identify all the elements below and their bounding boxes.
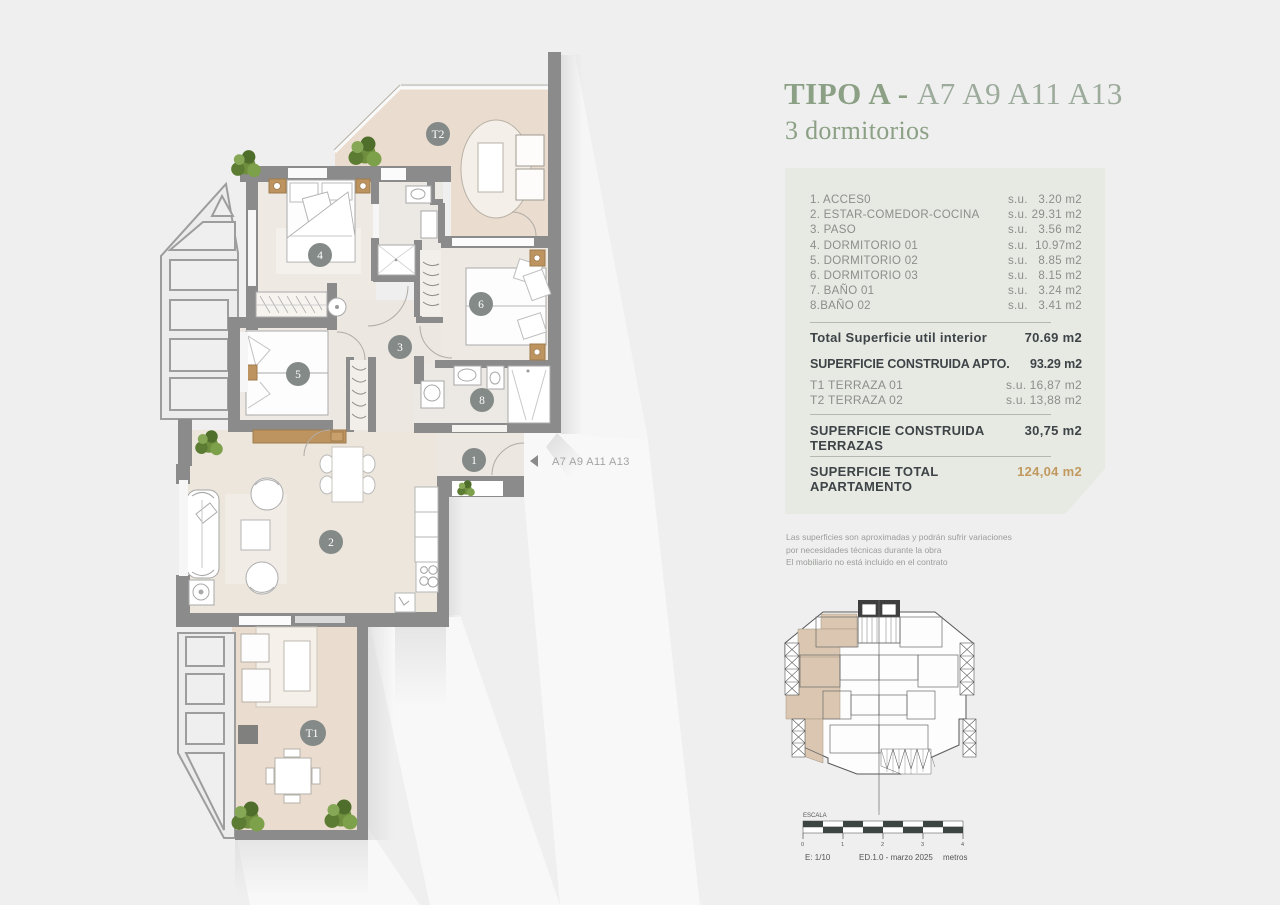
svg-text:2: 2 (881, 842, 884, 848)
svg-text:ED.1.0 - marzo 2025: ED.1.0 - marzo 2025 (859, 853, 933, 862)
svg-text:E: 1/10: E: 1/10 (805, 853, 831, 862)
svg-text:6: 6 (478, 299, 484, 311)
svg-text:A7 A9 A11 A13: A7 A9 A11 A13 (552, 456, 630, 468)
svg-text:4: 4 (317, 250, 323, 262)
svg-text:1: 1 (471, 455, 477, 467)
svg-text:0: 0 (801, 842, 804, 848)
svg-text:ESCALA: ESCALA (803, 813, 827, 819)
svg-text:8: 8 (479, 395, 485, 407)
svg-text:T1: T1 (306, 728, 319, 740)
svg-text:1: 1 (841, 842, 844, 848)
svg-text:4: 4 (961, 842, 964, 848)
svg-text:5: 5 (295, 369, 301, 381)
svg-text:3: 3 (921, 842, 924, 848)
svg-text:2: 2 (328, 537, 334, 549)
svg-text:T2: T2 (432, 129, 445, 141)
svg-text:3: 3 (397, 342, 403, 354)
svg-text:metros: metros (943, 853, 967, 862)
